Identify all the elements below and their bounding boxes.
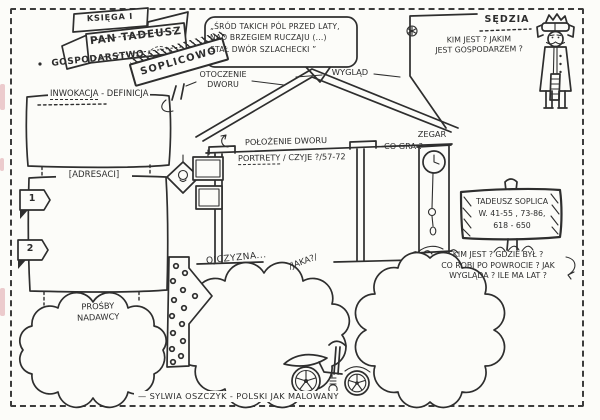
inwokacja-label: INWOKACJA - DEFINICJA — [48, 88, 150, 99]
judge-figure — [537, 14, 574, 108]
author-credit: — SYLWIA OSZCZYK - POLSKI JAK MALOWANY — [134, 391, 343, 402]
prosby-label: PROŚBY NADAWCY — [54, 299, 143, 324]
tab-2: 2 — [21, 243, 39, 255]
wyglad-label: WYGLĄD — [324, 67, 376, 78]
quote-line: STAŁ DWÓR SZLACHECKI ” — [210, 44, 354, 55]
ojczyzna-cloud — [179, 263, 350, 408]
dotted-connectors — [42, 165, 150, 305]
sedzia-questions: KIM JEST ? JAKIM JEST GOSPODARZEM ? — [420, 34, 538, 56]
grandfather-clock — [410, 145, 458, 256]
zegar-question: CO GRA ? — [384, 141, 434, 152]
adresaci-label: [ADRESACI] — [56, 170, 132, 181]
opening-quote: „ŚRÓD TAKICH PÓL PRZED LATY, NAD BRZEGIE… — [210, 21, 354, 55]
tadeusz-sign-text: TADEUSZ SOPLICA W. 41-55 , 73-86, 618 - … — [468, 196, 556, 232]
portrait-frames — [167, 150, 223, 209]
quote-line: NAD BRZEGIEM RUCZAJU (...) — [210, 32, 354, 43]
tab-1: 1 — [23, 193, 41, 205]
zegar-label: ZEGAR — [410, 129, 454, 140]
sketchnote-page: KSIĘGA I PAN TADEUSZ GOSPODARSTWO 1 SOPL… — [0, 0, 600, 420]
inwokacja-box — [26, 94, 170, 168]
quote-line: „ŚRÓD TAKICH PÓL PRZED LATY, — [210, 21, 354, 32]
sedzia-title: SĘDZIA — [479, 14, 535, 26]
otoczenie-label: OTOCZENIE DWORU — [192, 70, 254, 91]
sedzia-box-shape — [407, 14, 531, 128]
tadeusz-questions: KIM JEST ? GDZIE BYŁ ? CO ROBI PO POWROC… — [422, 250, 574, 282]
soplicowo-post — [162, 82, 196, 112]
